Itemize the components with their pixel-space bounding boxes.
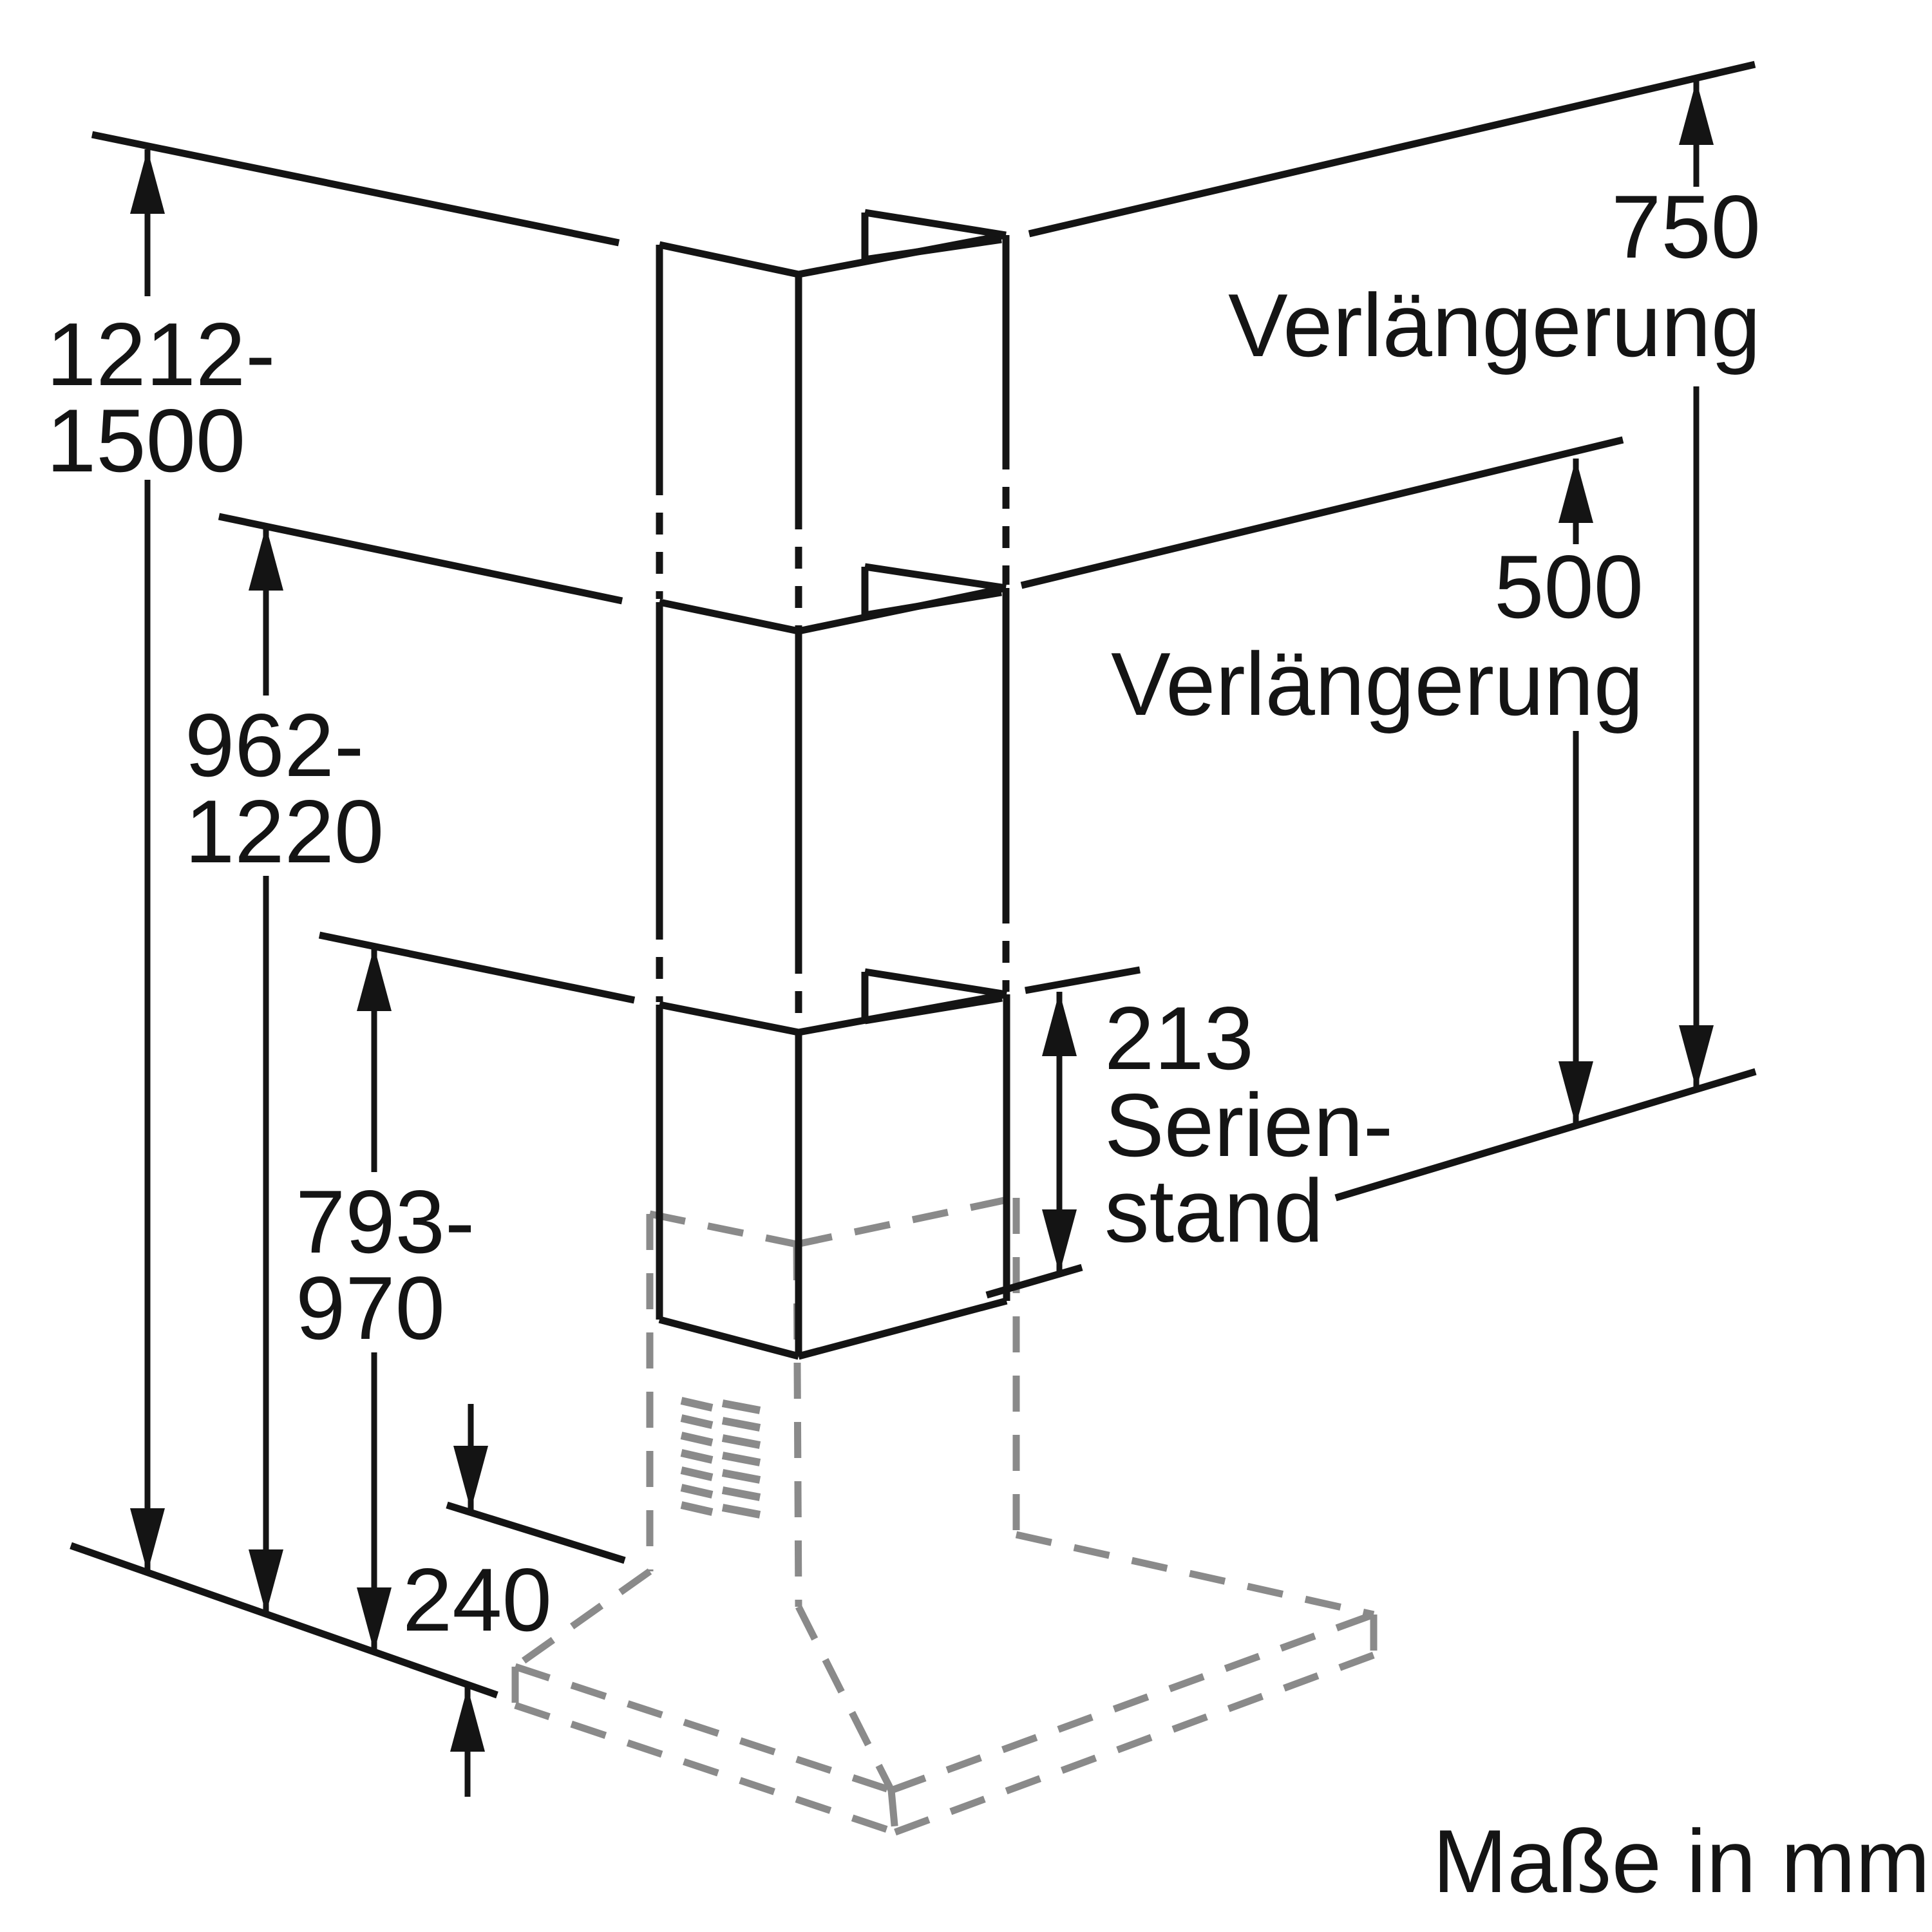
duct3-bottom-left — [659, 1320, 799, 1356]
arrow-240-down-head — [453, 1446, 488, 1510]
hood-rim-bottom-right — [895, 1655, 1374, 1832]
arrow-1500-bottom-head — [130, 1508, 165, 1573]
hood-canopy-slope-right — [1016, 1535, 1374, 1615]
duct3-rim-left — [659, 1005, 799, 1032]
duct3-flap-top — [865, 972, 1007, 994]
label-serienstand-line1: Serien- — [1104, 1075, 1393, 1175]
vent-grille-slat — [723, 1508, 760, 1515]
duct2-rim-left — [659, 602, 799, 631]
arrow-1500-top-head — [130, 149, 165, 214]
label-serienstand-line2: stand — [1104, 1161, 1323, 1261]
vent-grille-slat — [723, 1421, 760, 1428]
vent-grille-slat — [681, 1470, 712, 1477]
duct3-bottom-right — [799, 1301, 1007, 1356]
dim-1212-1500-line1: 1212- — [46, 305, 276, 404]
vent-grille-slat — [723, 1403, 760, 1410]
vent-grille-slat — [723, 1473, 760, 1480]
vent-grille-slat — [681, 1435, 712, 1443]
hood-rim-bottom-left — [515, 1705, 895, 1832]
ref-213-top — [1025, 970, 1140, 990]
arrow-213-head — [1042, 1209, 1077, 1274]
hood-rim-corner-front — [891, 1790, 895, 1832]
vent-grille-slat — [681, 1418, 712, 1425]
duct1-flap-top — [865, 213, 1006, 235]
vent-grille-slat — [681, 1488, 712, 1495]
ref-serienstand-baseline — [1336, 1072, 1756, 1198]
arrow-1220-bottom-head — [249, 1549, 283, 1614]
hood-stub-rim-left — [650, 1214, 797, 1244]
hood-stub-rim-right — [797, 1198, 1016, 1244]
hood-rim-top-right — [891, 1615, 1374, 1790]
dim-793-970-line2: 970 — [296, 1258, 445, 1358]
dim-962-1220-line1: 962- — [185, 696, 364, 795]
arrow-500-top-head — [1558, 459, 1593, 523]
vent-grille-slat — [681, 1505, 712, 1512]
arrow-970-top-head — [357, 947, 392, 1011]
dim-1212-1500-line2: 1500 — [46, 391, 245, 491]
dim-500: 500 — [1494, 537, 1643, 637]
duct2-flap-top — [865, 567, 1006, 588]
dim-213: 213 — [1104, 989, 1254, 1088]
duct1-flap-bottom — [865, 240, 1001, 260]
vent-grille-slat — [723, 1455, 760, 1463]
vent-grille-slat — [681, 1453, 712, 1460]
duct3-flap-bottom — [865, 998, 1002, 1021]
dim-962-1220-line2: 1220 — [185, 782, 384, 882]
vent-grille-slat — [681, 1401, 712, 1408]
ref-213-bottom — [987, 1267, 1082, 1295]
arrow-240-up-head — [450, 1687, 485, 1752]
hidden-edges-group — [659, 448, 1006, 1030]
duct2-flap-bottom — [865, 592, 1001, 615]
duct1-rim-left — [659, 245, 799, 274]
arrow-1220-top-head — [249, 526, 283, 591]
ceiling-ref-left — [92, 135, 619, 243]
arrow-970-bottom-head — [357, 1587, 392, 1652]
arrow-213-head — [1042, 992, 1077, 1056]
label-verlaengerung-500: Verlängerung — [1111, 634, 1643, 734]
vent-grille-group — [681, 1401, 760, 1515]
dimension-labels-group: 1212-1500962-1220793-970240750Verlängeru… — [46, 177, 1930, 1911]
label-units-note: Maße in mm — [1433, 1812, 1930, 1911]
dim-240: 240 — [402, 1550, 552, 1650]
arrow-750-bottom-head — [1679, 1025, 1714, 1090]
hood-outline-group — [515, 1198, 1374, 1832]
vent-grille-slat — [723, 1438, 760, 1445]
arrow-750-top-head — [1679, 80, 1714, 145]
vent-grille-slat — [723, 1490, 760, 1497]
diagram-stage: 1212-1500962-1220793-970240750Verlängeru… — [0, 0, 1932, 1932]
dim-750: 750 — [1611, 177, 1761, 277]
label-verlaengerung-750: Verlängerung — [1228, 276, 1761, 375]
hood-dimension-diagram: 1212-1500962-1220793-970240750Verlängeru… — [0, 0, 1932, 1932]
arrow-500-bottom-head — [1558, 1061, 1593, 1126]
dim-793-970-line1: 793- — [296, 1172, 475, 1272]
